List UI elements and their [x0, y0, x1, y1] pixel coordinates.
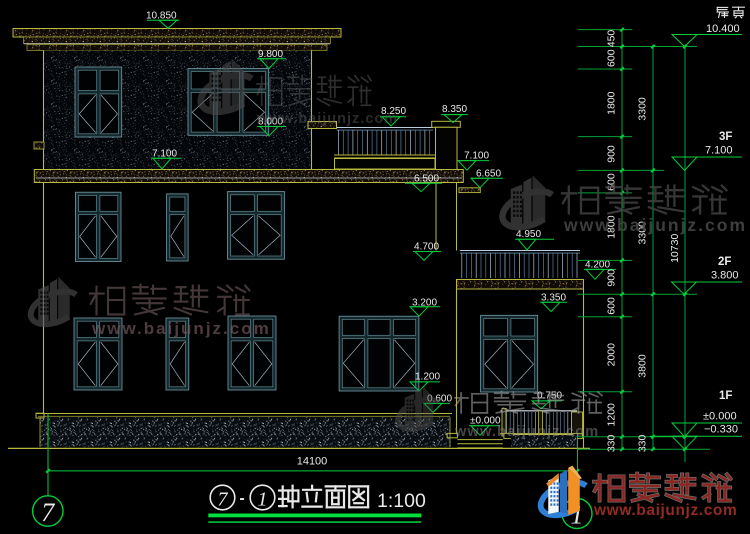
svg-text:7.100: 7.100	[705, 145, 733, 157]
svg-text:2F: 2F	[718, 256, 731, 268]
svg-text:1.200: 1.200	[415, 372, 440, 383]
svg-text:7: 7	[218, 489, 229, 511]
svg-text:−0.330: −0.330	[704, 424, 738, 436]
svg-text:www.baijunjz.com: www.baijunjz.com	[593, 502, 737, 519]
svg-text:450: 450	[606, 30, 618, 48]
svg-text:1:100: 1:100	[377, 490, 426, 512]
svg-text:10.400: 10.400	[706, 23, 740, 35]
svg-text:7: 7	[41, 498, 55, 527]
svg-text:-: -	[239, 490, 244, 507]
svg-text:www.baijunjz.com: www.baijunjz.com	[563, 215, 747, 235]
svg-text:3300: 3300	[637, 97, 649, 121]
svg-text:www.baijunjz.com: www.baijunjz.com	[91, 319, 271, 338]
svg-text:4.700: 4.700	[414, 242, 439, 253]
svg-text:900: 900	[606, 269, 618, 287]
svg-text:8.350: 8.350	[442, 104, 467, 115]
svg-text:2000: 2000	[606, 343, 618, 367]
svg-text:330: 330	[637, 434, 649, 452]
svg-text:1F: 1F	[719, 390, 732, 402]
svg-text:6.650: 6.650	[476, 168, 501, 179]
svg-text:1200: 1200	[606, 403, 618, 427]
svg-text:600: 600	[606, 49, 618, 67]
svg-text:900: 900	[606, 145, 618, 163]
svg-text:7.100: 7.100	[464, 151, 489, 162]
svg-text:330: 330	[606, 434, 618, 452]
svg-text:4.950: 4.950	[516, 229, 541, 240]
svg-text:6.500: 6.500	[414, 173, 439, 184]
svg-text:14100: 14100	[297, 456, 328, 468]
svg-text:3F: 3F	[719, 131, 732, 143]
svg-text:±0.000: ±0.000	[703, 411, 737, 423]
svg-text:1: 1	[258, 489, 268, 511]
svg-text:3.800: 3.800	[711, 270, 739, 282]
svg-text:www.baijunjz.com: www.baijunjz.com	[454, 424, 599, 440]
svg-text:4.200: 4.200	[585, 259, 610, 270]
svg-text:3800: 3800	[637, 354, 649, 378]
svg-text:1800: 1800	[606, 91, 618, 115]
svg-text:www.baijunjz.com: www.baijunjz.com	[256, 111, 398, 127]
svg-text:600: 600	[606, 297, 618, 315]
svg-text:10730: 10730	[669, 234, 681, 263]
